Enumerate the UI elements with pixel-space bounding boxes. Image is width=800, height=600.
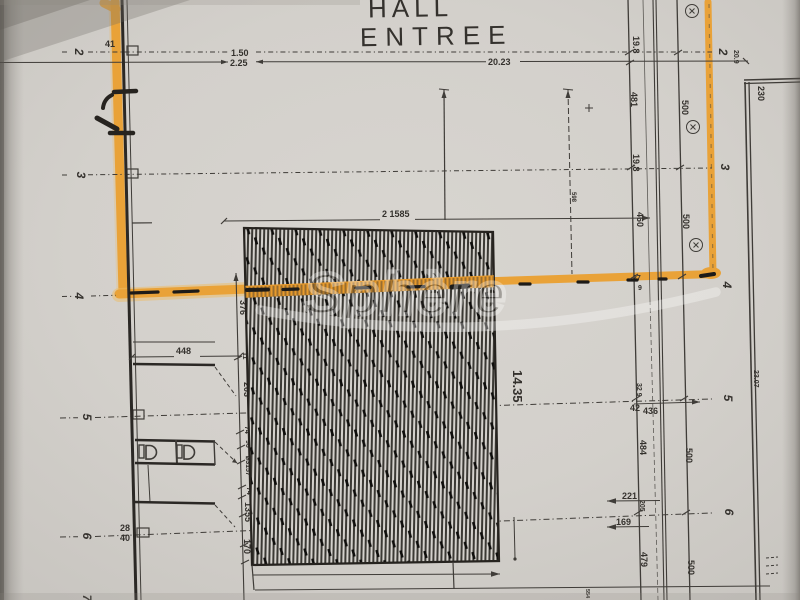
- svg-text:1.50: 1.50: [231, 48, 249, 58]
- svg-text:41: 41: [105, 39, 115, 49]
- svg-text:221: 221: [622, 491, 637, 501]
- svg-text:40: 40: [120, 533, 130, 543]
- svg-text:23.07: 23.07: [752, 370, 759, 388]
- svg-text:4: 4: [720, 281, 734, 289]
- svg-text:436: 436: [643, 406, 658, 416]
- svg-text:9: 9: [638, 285, 642, 292]
- svg-text:6: 6: [722, 509, 736, 516]
- svg-text:230: 230: [756, 86, 766, 101]
- svg-text:500: 500: [680, 100, 690, 115]
- svg-text:19.8: 19.8: [631, 154, 641, 172]
- svg-text:2: 2: [716, 48, 730, 56]
- svg-text:2: 2: [72, 48, 86, 56]
- svg-text:484: 484: [638, 440, 648, 455]
- svg-text:598: 598: [570, 192, 576, 203]
- svg-text:479: 479: [639, 552, 649, 567]
- svg-text:5: 5: [80, 414, 94, 421]
- svg-text:481: 481: [629, 92, 639, 107]
- svg-text:5: 5: [721, 395, 735, 402]
- svg-text:2.25: 2.25: [230, 58, 248, 68]
- svg-text:20.23: 20.23: [488, 57, 511, 67]
- svg-text:4: 4: [72, 292, 86, 300]
- svg-text:500: 500: [686, 560, 696, 575]
- svg-text:169: 169: [616, 517, 631, 527]
- svg-text:14.35: 14.35: [510, 370, 525, 403]
- svg-text:3: 3: [74, 172, 88, 179]
- svg-text:3: 3: [718, 164, 732, 171]
- svg-text:448: 448: [176, 346, 191, 356]
- svg-text:500: 500: [681, 214, 691, 229]
- svg-text:2 1585: 2 1585: [382, 209, 410, 219]
- svg-text:20.9: 20.9: [732, 50, 739, 64]
- svg-text:ENTREE: ENTREE: [360, 20, 514, 53]
- svg-text:500: 500: [684, 448, 694, 463]
- svg-text:460: 460: [635, 212, 645, 227]
- svg-text:6: 6: [80, 533, 94, 540]
- svg-text:42: 42: [630, 403, 640, 413]
- svg-text:28: 28: [120, 523, 130, 533]
- svg-text:32 9: 32 9: [635, 383, 642, 397]
